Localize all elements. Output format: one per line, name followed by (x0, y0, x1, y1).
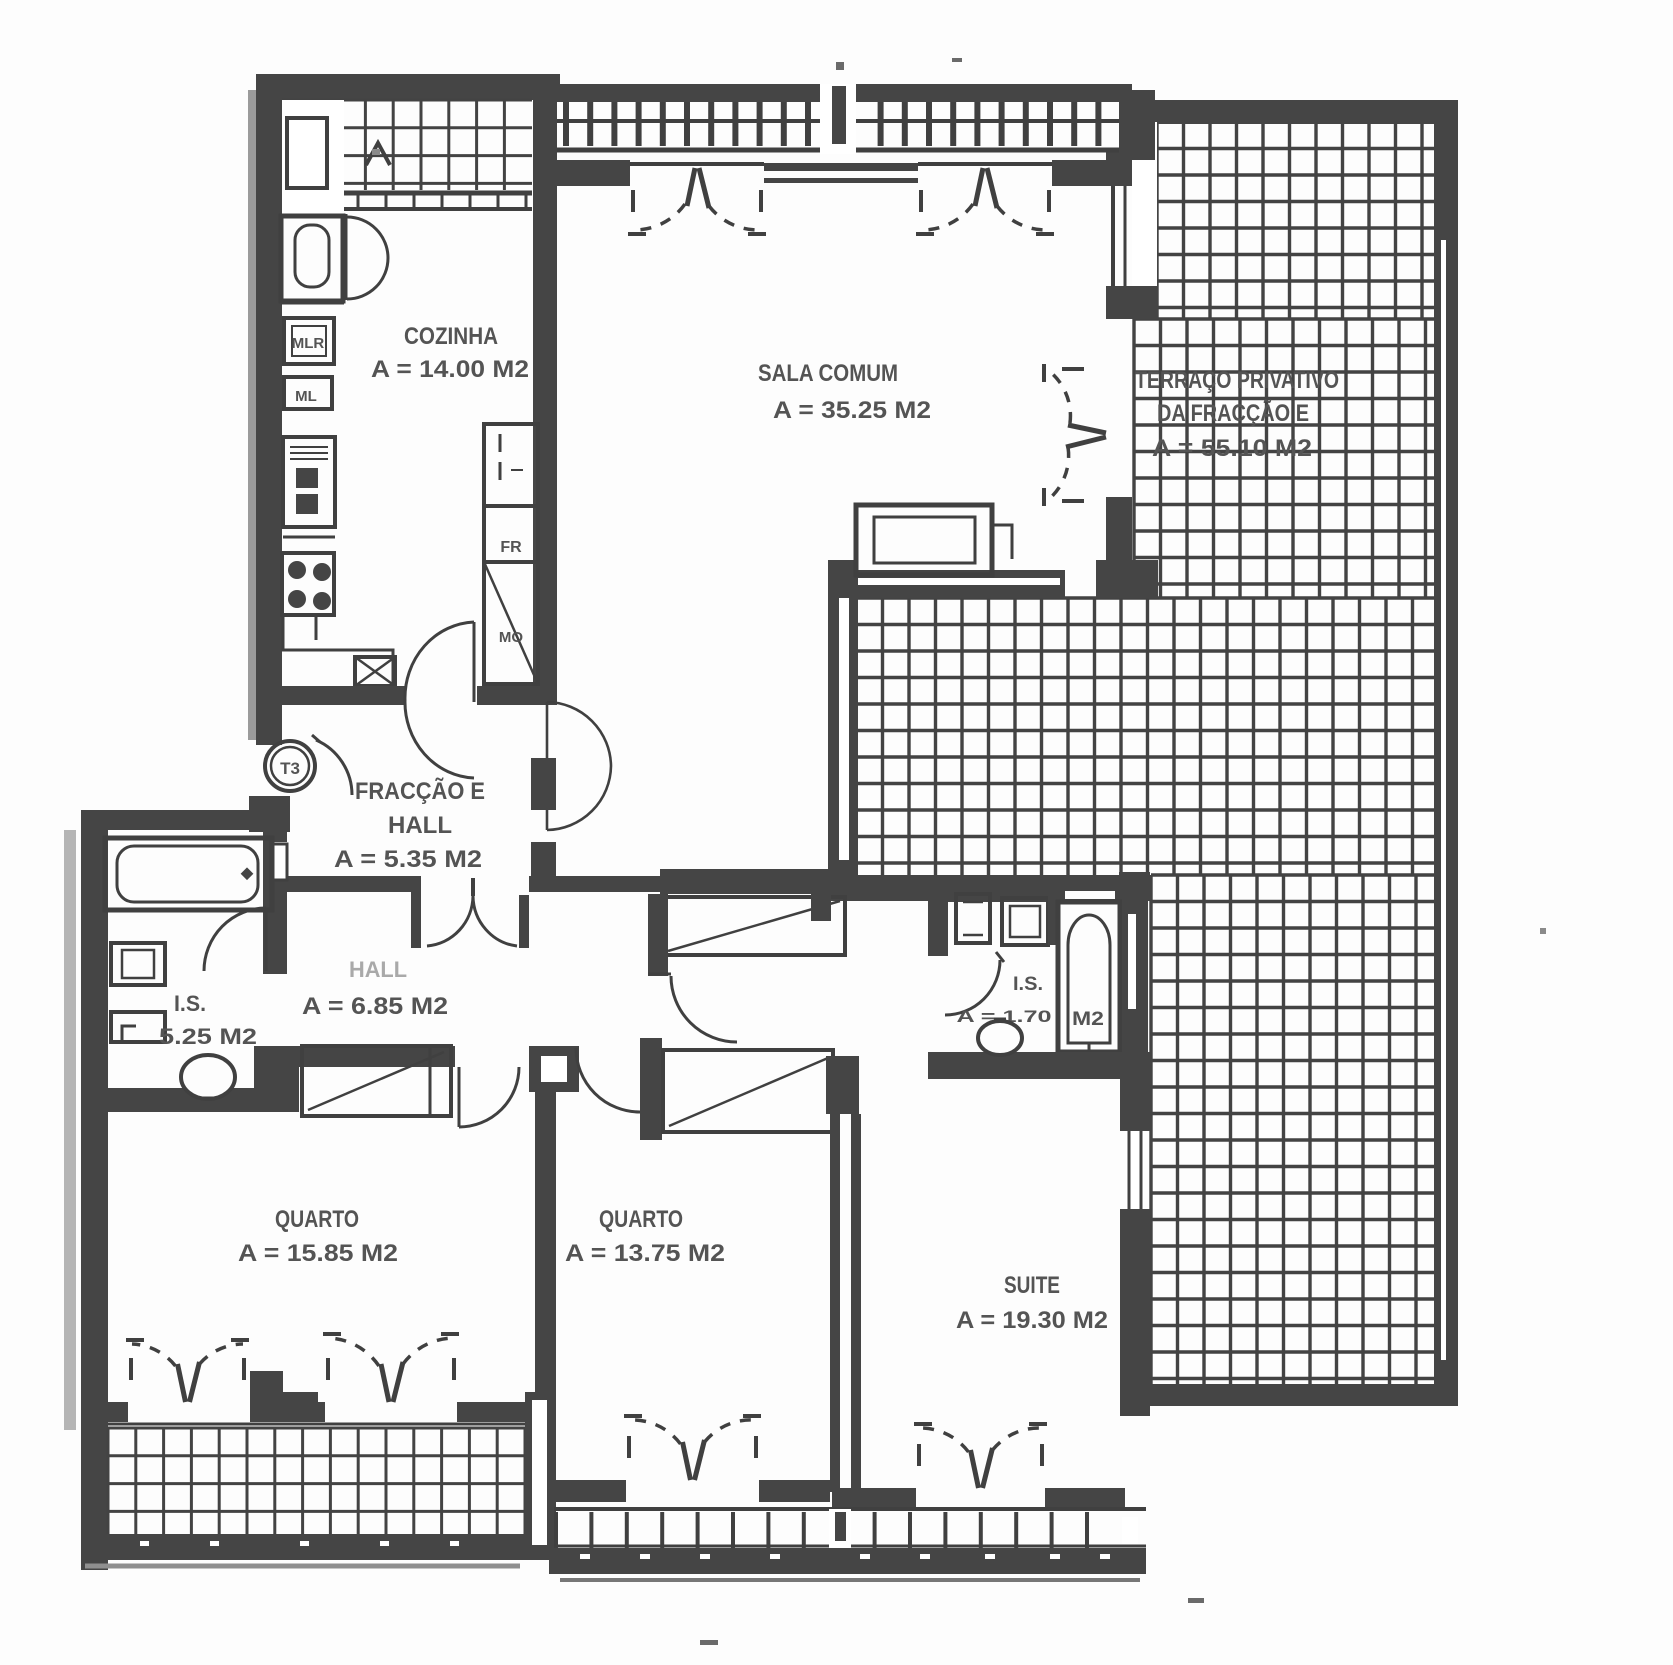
svg-text:I.S.: I.S. (174, 991, 206, 1016)
svg-text:HALL: HALL (388, 812, 452, 839)
svg-text:MLR: MLR (292, 335, 325, 352)
svg-text:A = 55.10 M2: A = 55.10 M2 (1152, 435, 1312, 462)
svg-text:A = 35.25 M2: A = 35.25 M2 (773, 397, 931, 424)
svg-text:SALA COMUM: SALA COMUM (758, 360, 898, 387)
svg-text:A = 13.75 M2: A = 13.75 M2 (565, 1240, 725, 1267)
svg-text:FRACÇÃO E: FRACÇÃO E (355, 777, 485, 805)
svg-text:MO: MO (499, 629, 523, 646)
svg-text:HALL: HALL (349, 957, 407, 982)
svg-text:SUITE: SUITE (1004, 1272, 1060, 1299)
svg-text:COZINHA: COZINHA (404, 323, 498, 350)
svg-text:A = 14.00 M2: A = 14.00 M2 (371, 356, 529, 383)
svg-text:I.S.: I.S. (1013, 974, 1043, 995)
svg-text:TERRAÇO PRIVATIVO: TERRAÇO PRIVATIVO (1135, 367, 1339, 394)
svg-text:A = 5.35 M2: A = 5.35 M2 (334, 846, 482, 873)
svg-text:T3: T3 (280, 759, 300, 778)
svg-text:QUARTO: QUARTO (275, 1206, 359, 1233)
svg-text:FR: FR (500, 539, 522, 556)
svg-text:QUARTO: QUARTO (599, 1206, 683, 1233)
svg-text:A = 19.30 M2: A = 19.30 M2 (956, 1307, 1108, 1334)
svg-text:A = 15.85 M2: A = 15.85 M2 (238, 1240, 398, 1267)
svg-text:M2: M2 (1072, 1009, 1104, 1030)
svg-text:A = 6.85 M2: A = 6.85 M2 (302, 993, 448, 1020)
svg-text:ML: ML (295, 388, 317, 405)
svg-text:DA FRACÇÃO E: DA FRACÇÃO E (1157, 399, 1309, 427)
svg-text:5.25 M2: 5.25 M2 (159, 1024, 257, 1049)
